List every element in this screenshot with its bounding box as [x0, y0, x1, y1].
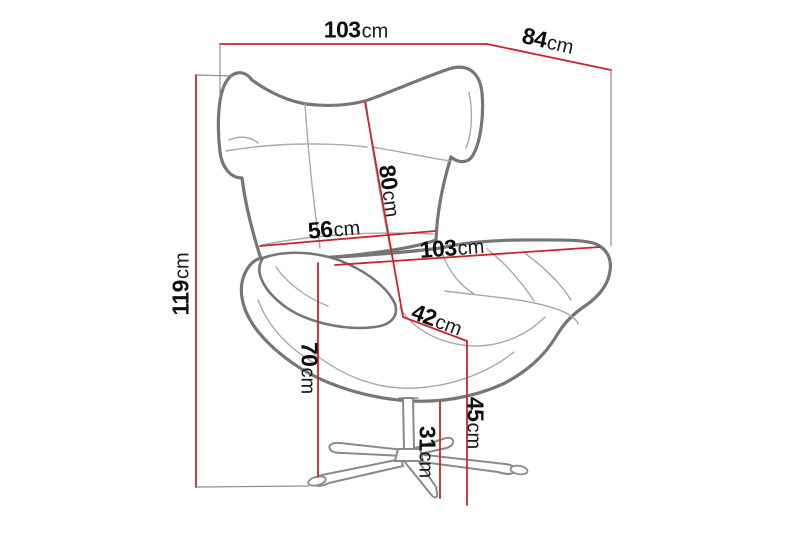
base-column [403, 398, 414, 449]
armchair-diagram-svg [0, 0, 800, 533]
base-hub [395, 449, 423, 461]
projection-top-left-horizontal [196, 75, 234, 76]
base-leg-front-left [312, 459, 403, 486]
base-leg-front [404, 459, 437, 497]
chair-back-outline [218, 67, 482, 259]
base-leg-right [415, 454, 515, 474]
chair-drawing [218, 67, 610, 497]
floor-line [196, 486, 309, 487]
dimension-diagram: 103cm 84cm 119cm 80cm 56cm 103cm 42cm 70… [0, 0, 800, 533]
dimension-line-top-depth-84 [487, 44, 611, 70]
base-leg-back-left [329, 443, 404, 456]
